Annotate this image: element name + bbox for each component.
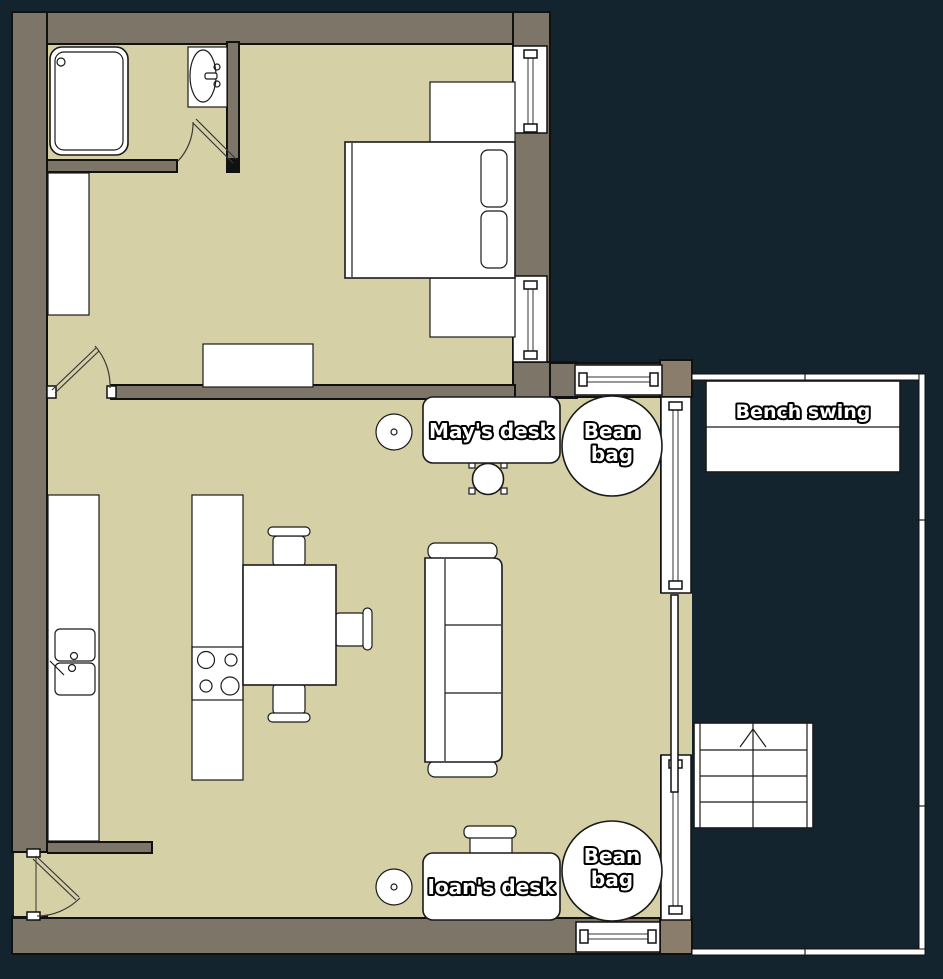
wall-left-upper <box>12 12 47 852</box>
may-desk-chair <box>469 462 507 495</box>
nightstand-top <box>430 82 515 142</box>
wall-post-bottom-right <box>660 918 692 954</box>
floor-plan: May's desk Bean bag Bench swing Ioan's d… <box>0 0 943 979</box>
may-desk-label: May's desk <box>429 419 554 443</box>
bean-bag-bottom-label-line2: bag <box>591 867 633 891</box>
ioan-desk-label: Ioan's desk <box>428 875 556 899</box>
living-window-east-upper <box>661 397 691 593</box>
wardrobe <box>48 173 89 315</box>
sofa-armrest-top <box>428 543 497 559</box>
floor-plan-drawing: May's desk Bean bag Bench swing Ioan's d… <box>0 0 943 979</box>
railing-top <box>692 374 925 380</box>
bench-swing <box>706 381 900 472</box>
bed <box>345 142 515 278</box>
bedroom-window-upper <box>513 46 547 133</box>
bean-bag-bottom-label-line1: Bean <box>584 844 641 868</box>
sofa <box>425 543 502 777</box>
pillow-bottom <box>481 211 507 268</box>
dining-chair-right <box>335 608 372 650</box>
bean-bag-top-label-line2: bag <box>591 442 633 466</box>
living-window-bottom <box>576 922 660 952</box>
stairs <box>694 723 813 828</box>
wall-top <box>12 12 550 44</box>
bathtub <box>50 47 128 155</box>
door-hinge-post <box>227 158 239 172</box>
bench-swing-label: Bench swing <box>736 401 871 423</box>
living-window-top <box>575 365 662 395</box>
nightstand-bottom <box>430 278 515 337</box>
dining-table <box>243 565 336 685</box>
kitchen-island <box>192 495 243 780</box>
railing-right <box>919 374 925 955</box>
bathroom-sink <box>188 47 227 107</box>
dining-chair-top <box>268 527 310 566</box>
sofa-body <box>425 558 502 762</box>
balcony <box>692 371 928 958</box>
bean-bag-top-label-line1: Bean <box>584 419 641 443</box>
stool-bottom <box>376 869 412 905</box>
railing-bottom <box>692 949 925 955</box>
wall-post-top-right <box>660 360 692 397</box>
pillow-top <box>481 150 507 207</box>
stool-top <box>376 414 412 450</box>
bedroom-window-lower <box>513 276 547 362</box>
wall-bathroom-bottom <box>47 160 177 172</box>
wall-kitchen-jut <box>47 842 152 853</box>
dresser <box>203 344 313 387</box>
sliding-door-panel <box>671 595 678 792</box>
dining-chair-bottom <box>268 684 310 722</box>
sofa-armrest-bottom <box>428 761 497 777</box>
